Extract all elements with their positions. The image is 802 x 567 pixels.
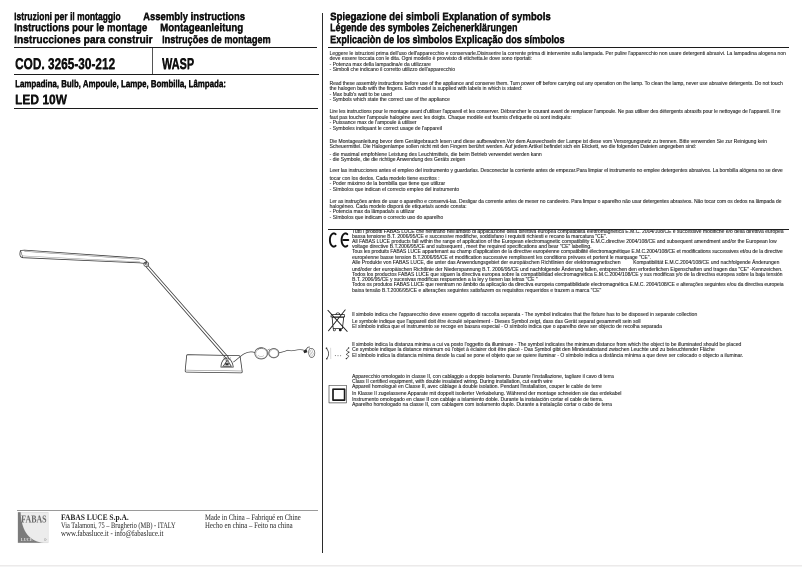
svg-text:FABAS: FABAS — [21, 513, 46, 524]
svg-text:LUCE: LUCE — [21, 538, 33, 542]
